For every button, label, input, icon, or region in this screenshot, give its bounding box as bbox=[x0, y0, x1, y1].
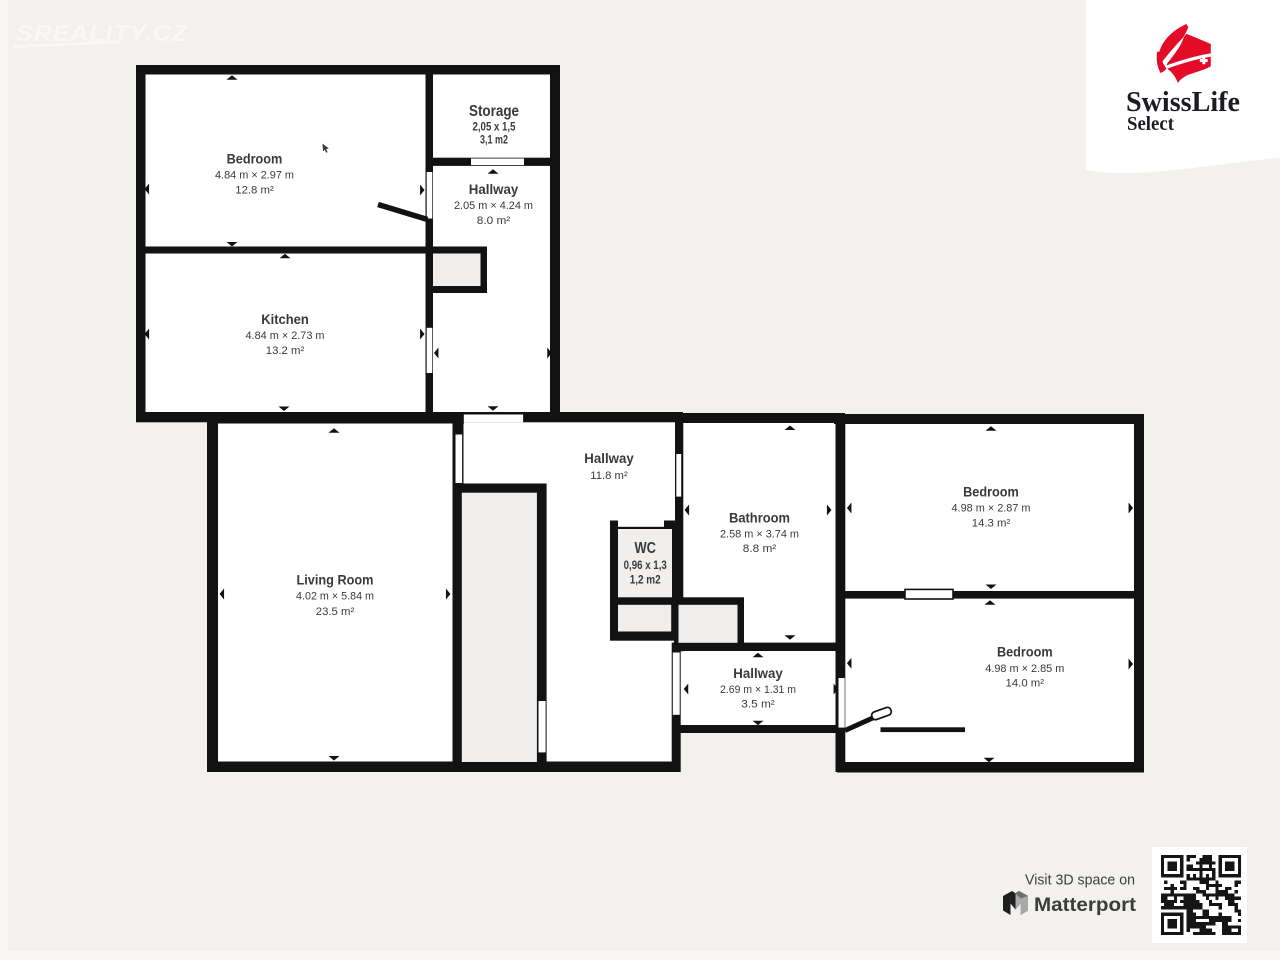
svg-text:8.0 m²: 8.0 m² bbox=[477, 215, 511, 227]
svg-text:13.2 m²: 13.2 m² bbox=[266, 345, 305, 357]
svg-text:Kitchen: Kitchen bbox=[261, 311, 309, 327]
svg-text:0,96 x 1,3: 0,96 x 1,3 bbox=[624, 560, 667, 572]
svg-text:Bathroom: Bathroom bbox=[729, 509, 790, 525]
svg-text:4.02 m × 5.84 m: 4.02 m × 5.84 m bbox=[296, 590, 374, 602]
svg-text:Hallway: Hallway bbox=[733, 665, 783, 681]
svg-text:4.98 m × 2.85 m: 4.98 m × 2.85 m bbox=[985, 663, 1064, 675]
svg-text:3,1 m2: 3,1 m2 bbox=[480, 135, 508, 147]
svg-text:8.8 m²: 8.8 m² bbox=[743, 543, 777, 555]
svg-text:2.58 m × 3.74 m: 2.58 m × 3.74 m bbox=[720, 529, 799, 541]
svg-text:Hallway: Hallway bbox=[469, 181, 519, 197]
svg-text:14.0 m²: 14.0 m² bbox=[1006, 678, 1045, 690]
svg-text:12.8 m²: 12.8 m² bbox=[235, 185, 274, 197]
svg-text:14.3 m²: 14.3 m² bbox=[972, 518, 1011, 530]
svg-text:Matterport: Matterport bbox=[1034, 895, 1137, 916]
svg-text:1,2 m2: 1,2 m2 bbox=[630, 574, 661, 586]
svg-text:Bedroom: Bedroom bbox=[963, 483, 1019, 499]
svg-text:Visit 3D space on: Visit 3D space on bbox=[1025, 873, 1135, 889]
svg-text:23.5 m²: 23.5 m² bbox=[316, 606, 355, 618]
svg-text:Living Room: Living Room bbox=[297, 571, 374, 587]
svg-text:2.05 m × 4.24 m: 2.05 m × 4.24 m bbox=[454, 200, 533, 212]
svg-text:Bedroom: Bedroom bbox=[997, 644, 1053, 660]
svg-text:Storage: Storage bbox=[469, 103, 519, 120]
svg-text:4.84 m × 2.73 m: 4.84 m × 2.73 m bbox=[246, 330, 325, 342]
svg-text:2.69 m × 1.31 m: 2.69 m × 1.31 m bbox=[720, 684, 796, 696]
svg-text:2,05 x 1,5: 2,05 x 1,5 bbox=[473, 121, 517, 133]
svg-text:Select: Select bbox=[1127, 113, 1174, 135]
svg-text:4.84 m × 2.97 m: 4.84 m × 2.97 m bbox=[215, 170, 294, 182]
svg-text:4.98 m × 2.87 m: 4.98 m × 2.87 m bbox=[952, 503, 1031, 515]
svg-text:11.8 m²: 11.8 m² bbox=[590, 470, 628, 482]
svg-text:3.5 m²: 3.5 m² bbox=[741, 699, 775, 711]
svg-text:WC: WC bbox=[634, 540, 656, 557]
svg-text:Bedroom: Bedroom bbox=[227, 151, 283, 167]
svg-text:Hallway: Hallway bbox=[584, 450, 634, 466]
